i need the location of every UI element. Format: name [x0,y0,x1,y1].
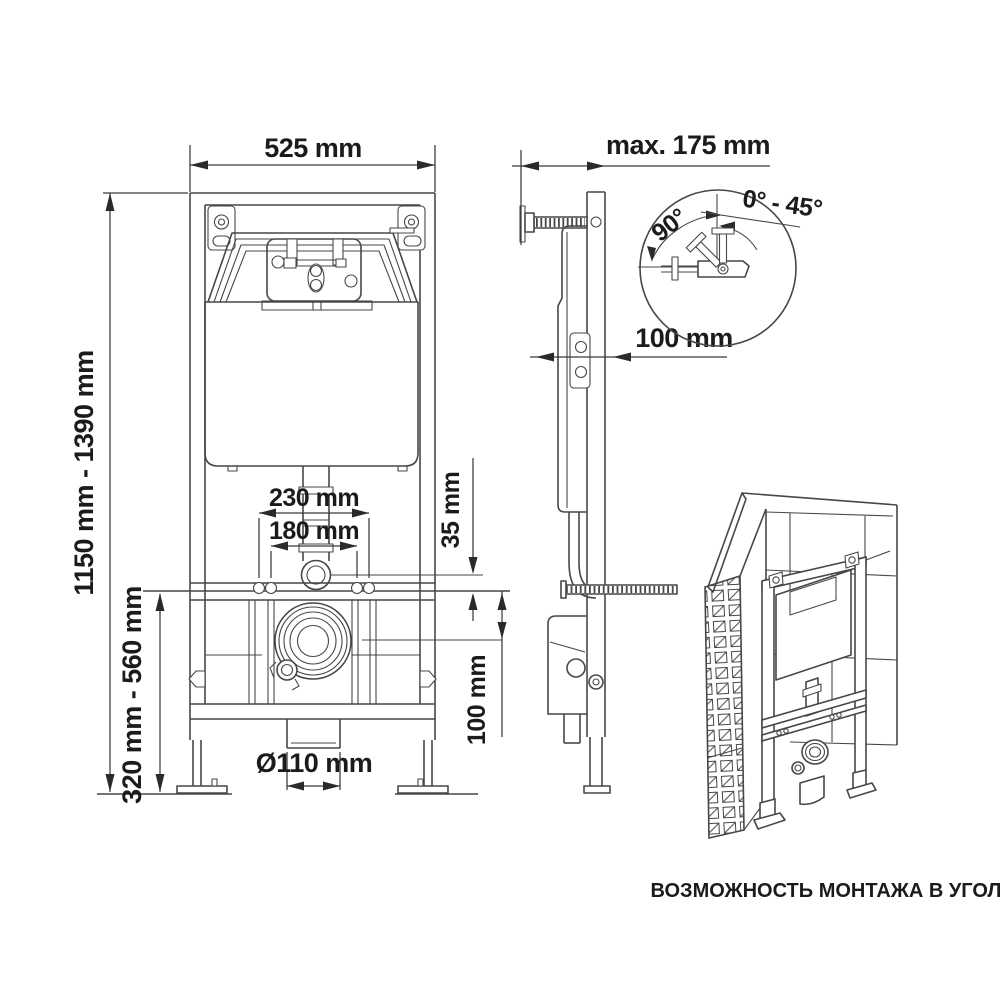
corner-mounting-caption: ВОЗМОЖНОСТЬ МОНТАЖА В УГОЛ [651,880,1000,902]
block-wall-left [705,493,766,838]
rod-hole [591,217,601,227]
diagram-canvas: 525 mm 1150 mm - 1390 mm 320 mm - 560 mm… [0,0,1000,1000]
wall-bracket-left [208,206,235,250]
dim-fixing-inner-label: 180 mm [269,517,359,545]
side-tab-left [189,671,205,687]
dim-inlet-offset-label: 35 mm [437,472,465,549]
installation-frame-drawing: 525 mm 1150 mm - 1390 mm 320 mm - 560 mm… [0,0,1000,1000]
cistern-body [205,302,418,466]
frame-isometric [754,551,890,829]
detail-view-angle: 90° 0° - 45° [638,185,824,346]
fixing-stud [352,583,363,594]
side-tab-right [420,671,436,687]
dim-fixing-outer-label: 230 mm [269,484,359,512]
dim-height-label: 1150 mm - 1390 mm [69,350,99,595]
side-view [520,192,677,793]
cistern-side [558,226,590,512]
dim-depth-100: 100 mm [530,323,733,362]
dim-outlet-diameter-110: Ø110 mm [256,748,373,791]
dim-outlet-offset-100: 100 mm [463,591,507,745]
dim-inlet-offset-35: 35 mm [437,458,478,621]
dim-lower-height-320-560: 320 mm - 560 mm [117,586,165,804]
foot-left [177,786,227,793]
outlet-chute [287,719,340,748]
anchor-nut [525,213,534,232]
dim-lower-height-label: 320 mm - 560 mm [117,586,147,804]
side-foot [584,737,610,793]
outlet-housing-side [548,616,603,743]
dim-outlet-offset-label: 100 mm [463,655,491,745]
dim-width-label: 525 mm [264,133,362,163]
fixing-stud [254,583,265,594]
inspection-panel [267,239,361,301]
dim-max-depth-label: max. 175 mm [606,130,770,160]
wall-anchor-rod-top [520,206,587,242]
wall-anchor-rod-bottom [561,581,677,598]
flush-rod-head [284,258,296,268]
angle-range-label: 0° - 45° [741,185,824,224]
dim-outlet-diameter-label: Ø110 mm [256,748,373,778]
isometric-view: ВОЗМОЖНОСТЬ МОНТАЖА В УГОЛ [651,493,1000,902]
fixing-stud [364,583,375,594]
foot-right [398,786,448,793]
fixing-stud [266,583,277,594]
dim-width-525: 525 mm [190,133,435,192]
flush-valve-seat [308,264,324,292]
angle-90-label: 90° [646,203,692,247]
